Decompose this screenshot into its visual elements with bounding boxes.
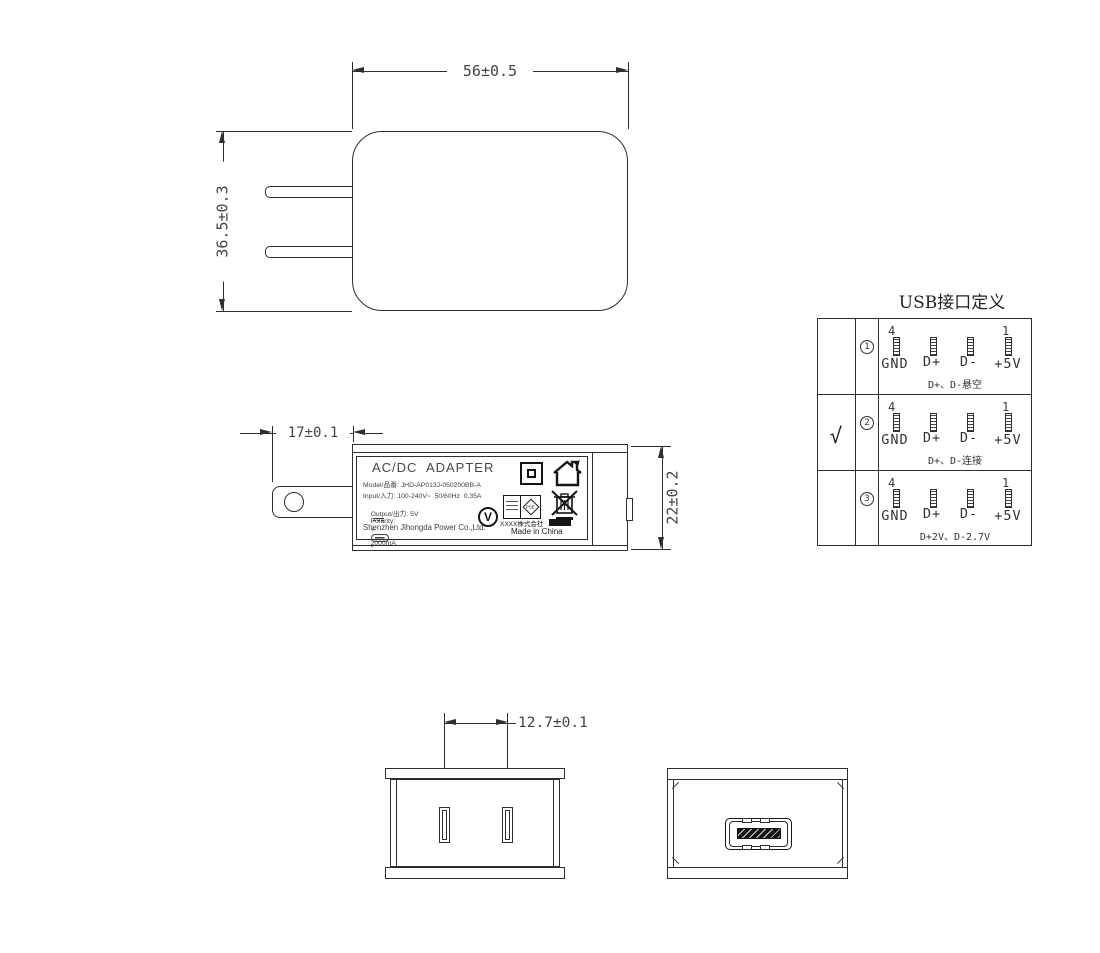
dim-width-arrow-left xyxy=(352,67,364,73)
dim-height-ext-top xyxy=(216,131,352,132)
label-black-bar xyxy=(549,519,571,526)
label-model-line: Model/品番: JHD-AP013J-050200BB-A xyxy=(363,479,481,489)
row1-label-dminus: D- xyxy=(954,354,984,370)
usb-table-row-line-2 xyxy=(817,470,1032,471)
prong-slot-right-inner xyxy=(505,810,510,840)
usb-table-row-line-1 xyxy=(817,394,1032,395)
usb-tab-bottom-right xyxy=(760,845,770,850)
label-input-line: Input/入力: 100-240V~ 50/60Hz 0.35A xyxy=(363,490,481,500)
pse-mark: PSE xyxy=(503,495,541,519)
row3-label-5v: +5V xyxy=(988,508,1028,524)
bottom-view-bottom-cap xyxy=(385,867,565,879)
row2-pin-icon-5v xyxy=(1005,413,1012,432)
dim-depth-arrow-bottom xyxy=(658,537,664,549)
prong-slot-left-inner xyxy=(442,810,447,840)
row3-label-dplus: D+ xyxy=(917,506,947,522)
dim-width-text: 56±0.5 xyxy=(447,63,533,80)
row3-label-dminus: D- xyxy=(954,506,984,522)
usb-tab-top-right xyxy=(760,818,770,823)
row2-selected-mark: √ xyxy=(818,424,854,448)
side-body-top-seam xyxy=(352,452,628,453)
usb-face-inner-line-right xyxy=(842,779,843,867)
pse-left-cell xyxy=(504,496,521,518)
row2-label-dplus: D+ xyxy=(917,430,947,446)
row1-label-5v: +5V xyxy=(988,356,1028,372)
dim-blade-arrow-right xyxy=(353,429,365,435)
dim-height-text: 36.5±0.3 xyxy=(215,162,232,282)
indoor-use-only-icon xyxy=(550,459,586,487)
class-ii-insulation-icon xyxy=(520,462,543,485)
usb-tab-bottom-left xyxy=(742,845,752,850)
dim-depth-text: 22±0.2 xyxy=(665,453,682,543)
dim-height-arrow-bottom xyxy=(219,299,225,311)
bottom-view-inner-line-left xyxy=(396,779,397,867)
row1-index-badge: 1 xyxy=(860,340,874,354)
label-made-in: Made in China xyxy=(511,527,563,536)
dim-height-arrow-top xyxy=(219,131,225,143)
pse-diamond-icon: PSE xyxy=(522,499,539,516)
usb-face-inner-line-left xyxy=(673,779,674,867)
dim-width-arrow-right xyxy=(616,67,628,73)
usb-face-top-seam xyxy=(667,779,848,780)
weee-crossed-bin-icon xyxy=(551,489,578,520)
polarity-minus-sign: - xyxy=(371,542,374,551)
row2-pin-number-1: 1 xyxy=(1002,400,1009,414)
usb-table-title: USB接口定义 xyxy=(872,288,1032,313)
plug-prong-bottom xyxy=(265,246,353,258)
row1-pin-icon-5v xyxy=(1005,337,1012,356)
row2-pin-icon-gnd xyxy=(893,413,900,432)
dim-blade-ext-right xyxy=(353,426,354,442)
row1-label-dplus: D+ xyxy=(917,354,947,370)
pse-text: PSE xyxy=(526,504,535,509)
usb-tab-top-left xyxy=(742,818,752,823)
label-polarity-line: Polarity: + - xyxy=(363,511,395,558)
label-title: AC/DC ADAPTER xyxy=(372,460,494,475)
dim-blade-arrow-left xyxy=(260,429,272,435)
row2-index-badge: 2 xyxy=(860,416,874,430)
dim-depth-ext-top xyxy=(631,446,671,447)
dim-pitch-leader xyxy=(508,723,516,724)
efficiency-level-icon: V xyxy=(478,507,498,527)
row1-note: D+、D-悬空 xyxy=(880,376,1030,391)
adapter-front-body xyxy=(352,131,628,311)
dim-blade-leader-right xyxy=(365,433,383,434)
row2-note: D+、D-连接 xyxy=(880,452,1030,467)
row1-label-gnd: GND xyxy=(875,356,915,372)
row3-pin-number-1: 1 xyxy=(1002,476,1009,490)
row3-pin-number-4: 4 xyxy=(888,476,895,490)
row2-label-gnd: GND xyxy=(875,432,915,448)
dim-blade-text: 17±0.1 xyxy=(276,425,350,442)
usb-contact-bar xyxy=(737,828,781,839)
side-body-end-seam xyxy=(592,452,593,545)
dim-blade-ext-left xyxy=(272,426,273,482)
bottom-view-inner-line-right xyxy=(553,779,554,867)
row3-index-badge: 3 xyxy=(860,492,874,506)
row1-pin-icon-gnd xyxy=(893,337,900,356)
dim-height-ext-bottom xyxy=(216,311,352,312)
dim-depth-arrow-top xyxy=(658,446,664,458)
adapter-technical-drawing: 56±0.5 36.5±0.3 17±0.1 22±0.2 AC/DC ADAP… xyxy=(0,0,1100,953)
class-ii-inner-square xyxy=(527,469,536,478)
row3-pin-icon-5v xyxy=(1005,489,1012,508)
row3-label-gnd: GND xyxy=(875,508,915,524)
bottom-view-body xyxy=(390,779,560,867)
row3-pin-icon-gnd xyxy=(893,489,900,508)
dim-pitch-arrow-left xyxy=(444,719,456,725)
dim-pitch-text: 12.7±0.1 xyxy=(518,715,588,732)
row2-label-dminus: D- xyxy=(954,430,984,446)
usb-table-col-line-1 xyxy=(855,318,856,546)
bottom-view-top-cap xyxy=(385,768,565,779)
dim-width-ext-left xyxy=(352,62,353,129)
barrel-connector-icon xyxy=(371,534,389,542)
dim-depth-ext-bottom xyxy=(631,549,671,550)
dim-width-ext-right xyxy=(628,62,629,129)
row2-label-5v: +5V xyxy=(988,432,1028,448)
row2-pin-number-4: 4 xyxy=(888,400,895,414)
label-company-line: Shenzhen Jihongda Power Co.,Ltd. xyxy=(363,523,486,532)
row3-note: D+2V、D-2.7V xyxy=(880,528,1030,543)
row1-pin-number-1: 1 xyxy=(1002,324,1009,338)
plug-prong-top xyxy=(265,186,353,198)
side-body-port-notch xyxy=(626,498,633,521)
usb-face-bottom-seam xyxy=(667,867,848,868)
blade-hole xyxy=(284,492,304,512)
pse-right-cell: PSE xyxy=(521,496,540,518)
row1-pin-number-4: 4 xyxy=(888,324,895,338)
